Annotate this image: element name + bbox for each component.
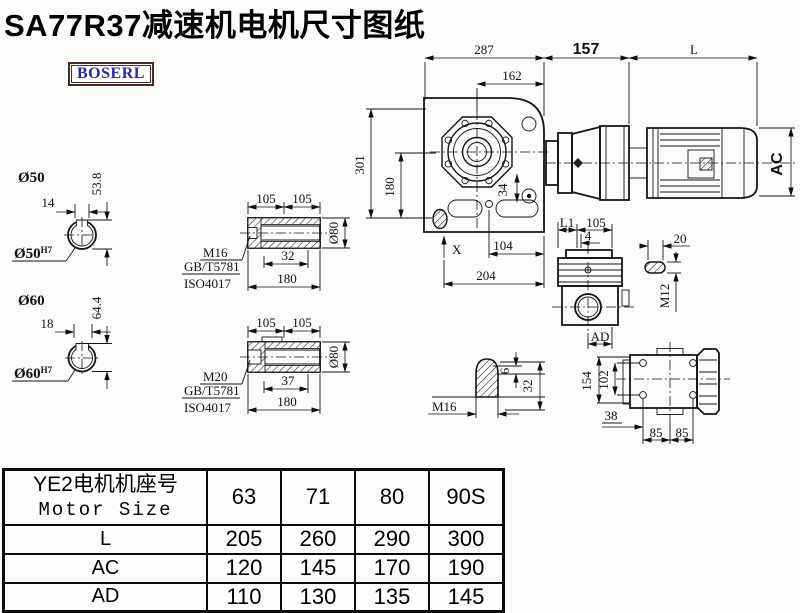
col-90s: 90S <box>429 470 504 525</box>
top-dimension-chain: 287 162 157 L <box>425 41 757 126</box>
cell-L-80: 290 <box>355 525 429 554</box>
dim-157: 157 <box>573 41 600 58</box>
table-row-L: L 205 260 290 300 <box>4 525 504 554</box>
header-en: Motor Size <box>5 498 206 522</box>
dim-64-4: 64.4 <box>89 296 104 319</box>
dim-AD: AD <box>591 329 610 344</box>
dim-L: L <box>690 42 698 57</box>
dim-38: 38 <box>605 408 618 423</box>
motor-key-detail: 20 M12 <box>640 231 690 312</box>
dim-162: 162 <box>502 68 522 83</box>
dim-L1: L1 <box>560 215 574 230</box>
table-row-AD: AD 110 130 135 145 <box>4 583 504 612</box>
label-iso-a: ISO4017 <box>184 276 231 291</box>
shaft-end-detail: 6 32 M16 <box>428 352 545 418</box>
bore-detail-50: Ø50 14 53.8 Ø50H7 <box>12 170 112 266</box>
cell-AC-71: 145 <box>281 554 355 583</box>
table-row-AC: AC 120 145 170 190 <box>4 554 504 583</box>
dim-AC: AC <box>769 152 786 176</box>
label-gb-b: GB/T5781 <box>184 383 240 398</box>
dim-105-a2: 105 <box>292 191 312 206</box>
gearmotor-side-view: L1 105 4 AD <box>552 215 634 349</box>
dim-X: X <box>452 242 462 257</box>
cell-AC-63: 120 <box>207 554 281 583</box>
label-m16-cone: M16 <box>432 399 457 414</box>
dim-204: 204 <box>476 268 496 283</box>
label-d50h7: Ø50H7 <box>14 245 53 262</box>
dim-105-b1: 105 <box>256 315 276 330</box>
dim-20: 20 <box>674 231 687 246</box>
cell-L-63: 205 <box>207 525 281 554</box>
dim-32-a: 32 <box>282 248 295 263</box>
oil-plug <box>433 210 447 229</box>
header-cn: YE2电机机座号 <box>5 472 206 498</box>
cell-AD-90s: 145 <box>429 583 504 612</box>
motor-size-table: YE2电机机座号 Motor Size 63 71 80 90S L 205 2… <box>2 468 505 613</box>
dim-105-b2: 105 <box>292 315 312 330</box>
cell-L-90s: 300 <box>429 525 504 554</box>
motor-assembly: AC <box>546 126 796 200</box>
label-gb-a: GB/T5781 <box>184 259 240 274</box>
dim-d80-b: Ø80 <box>326 346 341 368</box>
dim-37-b: 37 <box>282 373 296 388</box>
dim-180-b: 180 <box>277 394 297 409</box>
gearbox-top-view: 154 102 38 85 85 <box>579 342 730 444</box>
col-80: 80 <box>355 470 429 525</box>
dim-180v: 180 <box>382 177 397 197</box>
gearbox-front-view: 34 <box>424 92 550 232</box>
label-m20-b: M20 <box>203 369 228 384</box>
dim-85-a: 85 <box>650 425 663 440</box>
dim-102: 102 <box>596 370 611 390</box>
cell-AD-63: 110 <box>207 583 281 612</box>
dim-18: 18 <box>41 316 54 331</box>
dim-154: 154 <box>579 371 594 391</box>
hollow-shaft-section-b: 105 105 37 180 Ø80 M20 GB/T5781 ISO4017 <box>182 315 350 415</box>
top-lug-hole <box>522 117 536 131</box>
cell-AC-80: 170 <box>355 554 429 583</box>
dim-32-cone: 32 <box>520 380 535 393</box>
dim-4: 4 <box>585 228 592 243</box>
label-d60: Ø60 <box>18 293 45 309</box>
dim-85-b: 85 <box>676 425 689 440</box>
dim-53-8: 53.8 <box>89 173 104 196</box>
col-71: 71 <box>281 470 355 525</box>
dim-287: 287 <box>474 42 494 57</box>
label-m16-a: M16 <box>203 245 228 260</box>
hollow-shaft-section-a: 105 105 32 180 Ø80 M16 GB/T5781 ISO4017 <box>182 191 350 291</box>
dim-180-a: 180 <box>277 271 297 286</box>
dim-105-a1: 105 <box>256 191 276 206</box>
label-d50: Ø50 <box>18 170 45 186</box>
gearbox-base-dims: X 104 204 <box>444 210 544 288</box>
dim-14: 14 <box>42 195 56 210</box>
bore-detail-60: Ø60 18 64.4 Ø60H7 <box>12 293 112 389</box>
row-label-L: L <box>4 525 208 554</box>
label-d60h7: Ø60H7 <box>14 365 53 382</box>
row-label-AC: AC <box>4 554 208 583</box>
dim-d80-a: Ø80 <box>326 222 341 244</box>
cell-L-71: 260 <box>281 525 355 554</box>
row-label-AD: AD <box>4 583 208 612</box>
label-iso-b: ISO4017 <box>184 400 231 415</box>
dim-M12: M12 <box>657 284 672 309</box>
dim-6: 6 <box>497 367 512 374</box>
cell-AD-71: 130 <box>281 583 355 612</box>
dim-301: 301 <box>352 155 367 175</box>
table-header-motor-size: YE2电机机座号 Motor Size <box>4 470 208 525</box>
dim-104: 104 <box>493 238 513 253</box>
col-63: 63 <box>207 470 281 525</box>
cell-AD-80: 135 <box>355 583 429 612</box>
cell-AC-90s: 190 <box>429 554 504 583</box>
dim-34: 34 <box>495 183 510 197</box>
